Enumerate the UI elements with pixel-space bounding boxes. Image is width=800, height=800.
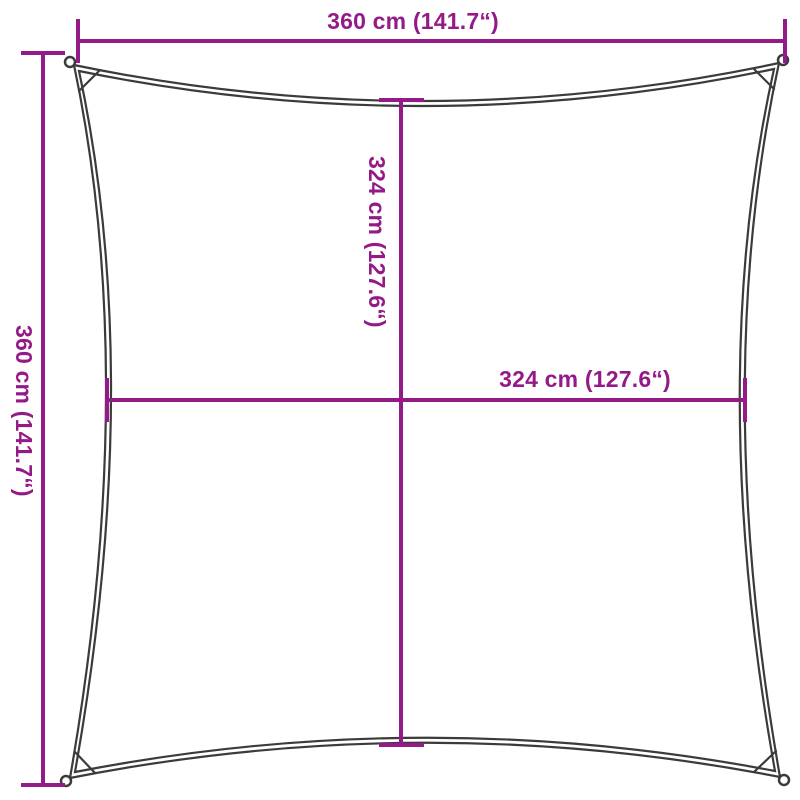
corner-eyelets [61,55,789,786]
dimension-label-outer-width: 360 cm (141.7“) [327,8,499,35]
eyelet-ring-top-left [65,57,75,67]
dimension-lines [21,19,785,785]
dimension-diagram: 360 cm (141.7“) 360 cm (141.7“) 324 cm (… [0,0,800,800]
sail-outline-inner [75,69,775,772]
dimension-label-inner-width: 324 cm (127.6“) [499,366,671,393]
sail-outline-outer [70,63,780,778]
dimension-label-outer-height: 360 cm (141.7“) [10,325,37,497]
dimension-label-inner-height: 324 cm (127.6“) [363,156,390,328]
eyelet-ring-bottom-right [779,775,789,785]
shade-sail-drawing [0,0,800,800]
sail-outline [70,63,780,778]
